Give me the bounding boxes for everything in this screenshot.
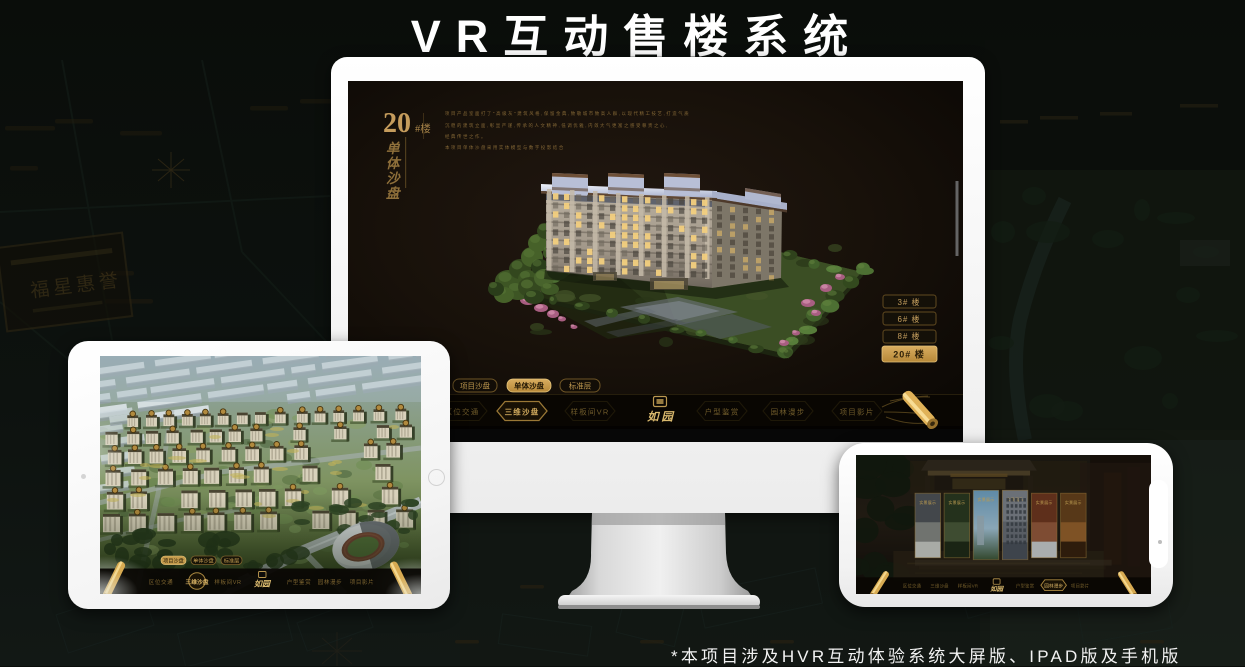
svg-text:区位交通: 区位交通	[149, 578, 173, 586]
svg-text:户型鉴赏: 户型鉴赏	[705, 407, 740, 417]
svg-text:实景展示: 实景展示	[919, 500, 936, 505]
svg-text:单体沙盘: 单体沙盘	[193, 556, 214, 564]
svg-text:单体沙盘: 单体沙盘	[514, 381, 544, 391]
svg-text:园林漫步: 园林漫步	[318, 578, 342, 586]
svg-text:本项目单体沙盘采用实体模型与数字投影结合: 本项目单体沙盘采用实体模型与数字投影结合	[445, 144, 565, 151]
svg-text:如园: 如园	[254, 580, 272, 589]
svg-text:项目影片: 项目影片	[840, 407, 875, 417]
svg-text:实景展示: 实景展示	[948, 500, 965, 505]
svg-text:沉稳的建筑立面,彰显严谨,传承的人文精神,低调优雅,内敛大气: 沉稳的建筑立面,彰显严谨,传承的人文精神,低调优雅,内敛大气更富之感受尊贵之心,	[445, 122, 669, 129]
svg-text:园林漫步: 园林漫步	[771, 407, 806, 417]
svg-text:20: 20	[383, 108, 411, 139]
svg-text:项目影片: 项目影片	[350, 578, 374, 586]
svg-text:3# 楼: 3# 楼	[897, 297, 920, 307]
svg-text:6# 楼: 6# 楼	[897, 314, 920, 324]
svg-text:项目沙盘: 项目沙盘	[163, 556, 184, 564]
svg-text:样板间VR: 样板间VR	[571, 407, 610, 417]
svg-text:样板间VR: 样板间VR	[214, 578, 241, 586]
svg-text:经典传世之作。: 经典传世之作。	[445, 133, 487, 140]
svg-text:沙: 沙	[386, 171, 401, 186]
svg-text:项目沙盘: 项目沙盘	[460, 381, 490, 391]
svg-text:如 园: 如 园	[647, 411, 675, 424]
svg-text:实景展示: 实景展示	[1036, 500, 1053, 505]
svg-text:区位交通: 区位交通	[903, 583, 922, 590]
svg-text:标准层: 标准层	[224, 556, 240, 564]
svg-text:样板间VR: 样板间VR	[958, 583, 978, 590]
svg-text:项目产品室面打了"高级灰"建筑风格,保留金典,致敬城市致高人: 项目产品室面打了"高级灰"建筑风格,保留金典,致敬城市致高人群,以现代精工技艺,…	[445, 110, 690, 117]
svg-text:实景展示: 实景展示	[1065, 500, 1082, 505]
svg-text:实景展示: 实景展示	[978, 497, 995, 502]
svg-text:8# 楼: 8# 楼	[897, 331, 920, 341]
svg-text:单: 单	[386, 141, 401, 156]
svg-text:三维沙盘: 三维沙盘	[505, 407, 540, 417]
svg-text:三维沙盘: 三维沙盘	[185, 578, 208, 586]
svg-text:三维沙盘: 三维沙盘	[930, 583, 949, 590]
svg-text:如园: 如园	[990, 585, 1004, 593]
svg-text:户型鉴赏: 户型鉴赏	[1016, 583, 1035, 590]
svg-text:户型鉴赏: 户型鉴赏	[287, 578, 311, 586]
svg-text:园林漫步: 园林漫步	[1044, 583, 1063, 590]
svg-text:20# 楼: 20# 楼	[893, 349, 925, 360]
svg-text:标准层: 标准层	[569, 381, 592, 391]
svg-text:项目影片: 项目影片	[1071, 583, 1089, 590]
